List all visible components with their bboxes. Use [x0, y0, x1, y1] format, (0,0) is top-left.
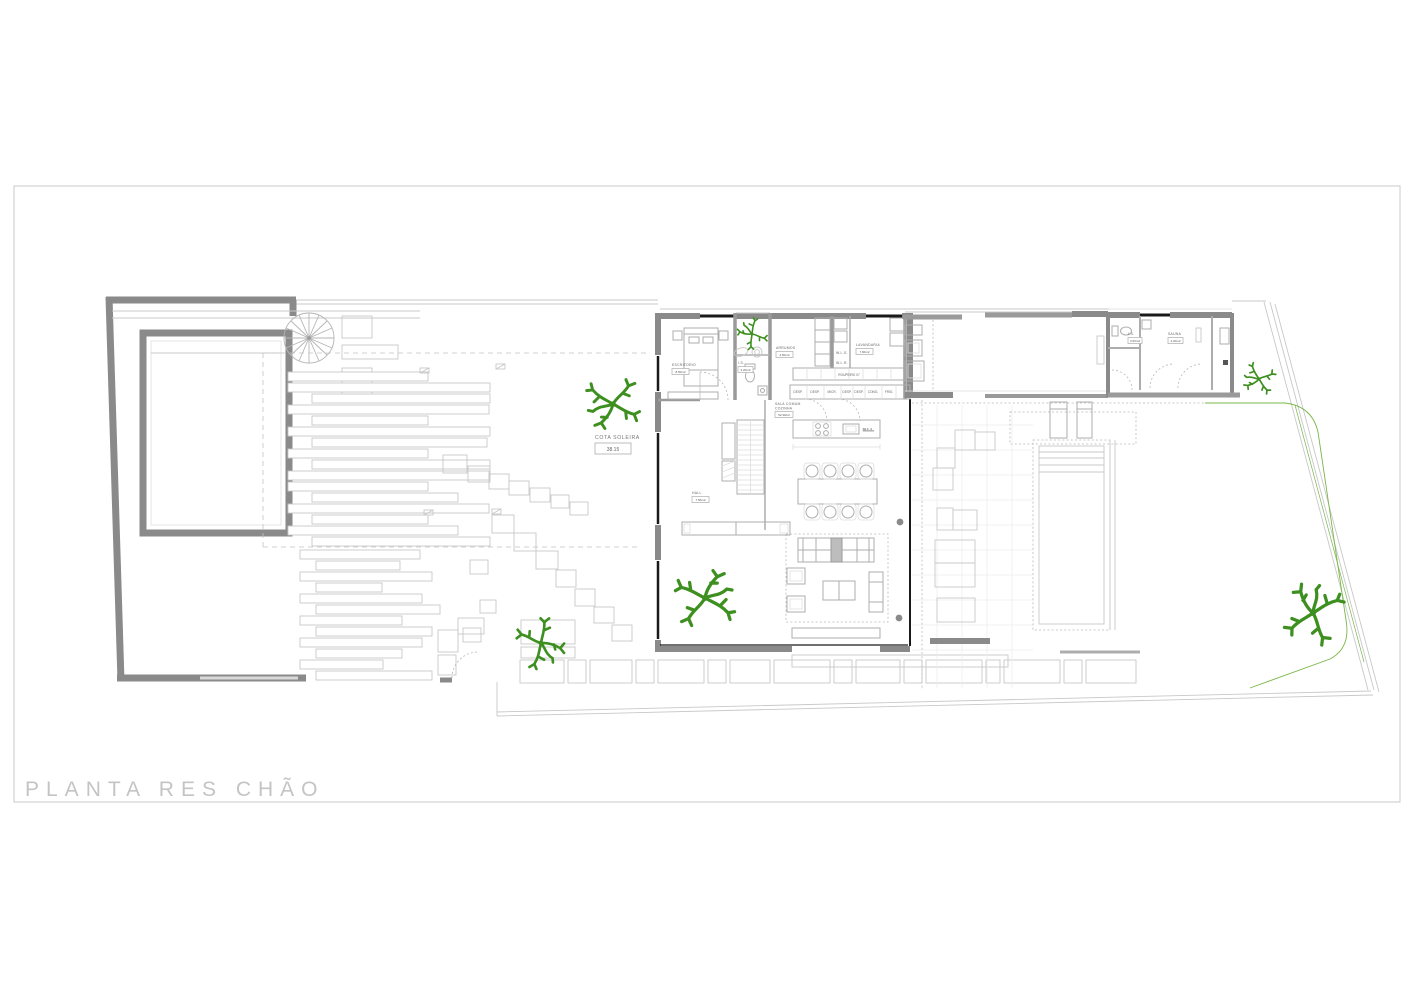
pantry-cell-label: DESP. — [854, 390, 863, 394]
pool-deck-dashed — [1010, 412, 1136, 444]
dining-chairs — [804, 463, 874, 520]
east-wing — [1108, 309, 1240, 397]
drawing-sheet: ROUPEIRO 07 DESP. DESP. MICR. DESP. DESP… — [0, 0, 1414, 1000]
sauna-heater — [1220, 328, 1229, 344]
room-area: 4.20m2 — [1170, 339, 1180, 343]
roupeiro-label: ROUPEIRO 07 — [838, 373, 860, 377]
pantry-cell-label: CONG. — [868, 390, 879, 394]
cota-value: 38.15 — [607, 447, 620, 453]
closet-label: W.L.S. — [836, 351, 848, 355]
deck-gate — [438, 618, 484, 680]
pantry-cell-label: DESP. — [793, 390, 802, 394]
closet-label: W.L.R. — [836, 361, 848, 365]
room-label: HALL — [692, 491, 702, 495]
kitchen-island: M.L.L. — [793, 420, 880, 450]
cota-label: COTA SOLEIRA — [595, 435, 640, 441]
duct — [1223, 360, 1228, 365]
main-house: ROUPEIRO 07 DESP. DESP. MICR. DESP. DESP… — [658, 309, 1110, 667]
annex-courtyard — [143, 333, 289, 533]
room-area: 52.30m2 — [778, 413, 790, 417]
spiral-stair-icon — [284, 313, 398, 394]
tree-icon — [1237, 357, 1281, 401]
pool-terrace — [912, 400, 1232, 690]
room-label: SAUNA — [1168, 332, 1182, 336]
wardrobe-band: ROUPEIRO 07 — [793, 368, 905, 380]
terrace-grid — [912, 405, 1033, 688]
carport — [903, 312, 1108, 396]
room-area: 4.50m2 — [779, 353, 789, 357]
sun-loungers — [1050, 402, 1092, 438]
pantry-cell-label: DESP. — [810, 390, 819, 394]
staircase — [722, 420, 764, 494]
room-area: 8.50m2 — [675, 370, 685, 374]
column — [897, 519, 904, 526]
hall-sideboard — [682, 522, 790, 535]
patio-objects — [733, 346, 762, 358]
room-area: 7.50m2 — [695, 498, 705, 502]
room-area: 7.60m2 — [859, 350, 869, 354]
room-label: LAVANDARIA — [856, 343, 880, 347]
dining-table — [798, 463, 877, 520]
room-label: COZINHA — [775, 407, 793, 411]
floor-plan-canvas: ROUPEIRO 07 DESP. DESP. MICR. DESP. DESP… — [0, 0, 1414, 1000]
pantry-cell-label: MICR. — [827, 390, 836, 394]
room-label: ARRUMOS — [776, 346, 796, 350]
room-area: 3.00m2 — [1130, 339, 1140, 343]
storage-room — [815, 318, 904, 366]
tree-icon — [580, 372, 646, 435]
tree-icon — [670, 565, 741, 633]
room-label: SALA COMUM — [775, 402, 801, 406]
room-label: I.S. — [738, 361, 744, 365]
terrace-stones — [933, 430, 995, 622]
room-area: 3.20m2 — [740, 368, 750, 372]
threshold-level: COTA SOLEIRA 38.15 — [595, 435, 640, 454]
stepping-stones — [443, 455, 632, 642]
page-title: PLANTA RES CHÃO — [25, 777, 325, 801]
room-label: I.S. — [1128, 332, 1134, 336]
room-label: ESCRITORIO — [672, 363, 696, 367]
tree-icon — [515, 616, 566, 670]
dishwasher-label: M.L.L. — [863, 428, 874, 432]
pantry-cells: DESP. DESP. MICR. DESP. DESP. CONG. FRIG… — [790, 385, 910, 421]
column — [896, 615, 903, 622]
pantry-cell-label: FRIG. — [885, 390, 894, 394]
pantry-cell-label: DESP. — [842, 390, 851, 394]
pool — [1033, 440, 1115, 630]
tree-icon — [735, 316, 768, 351]
